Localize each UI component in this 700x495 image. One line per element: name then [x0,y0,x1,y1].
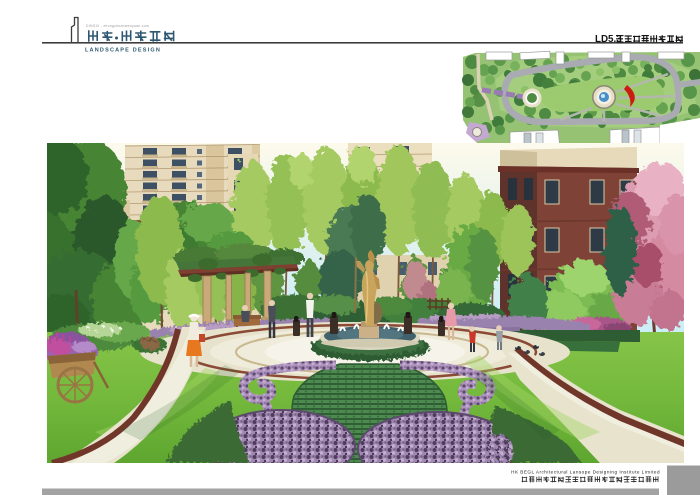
svg-text:LANDSCAPE DESIGN: LANDSCAPE DESIGN [85,48,161,54]
svg-text:DINGXI - zhongchuanwenyuan.com: DINGXI - zhongchuanwenyuan.com [86,24,149,28]
svg-text:HK BEGL Architectural Lansope: HK BEGL Architectural Lansope Designing … [511,470,660,475]
